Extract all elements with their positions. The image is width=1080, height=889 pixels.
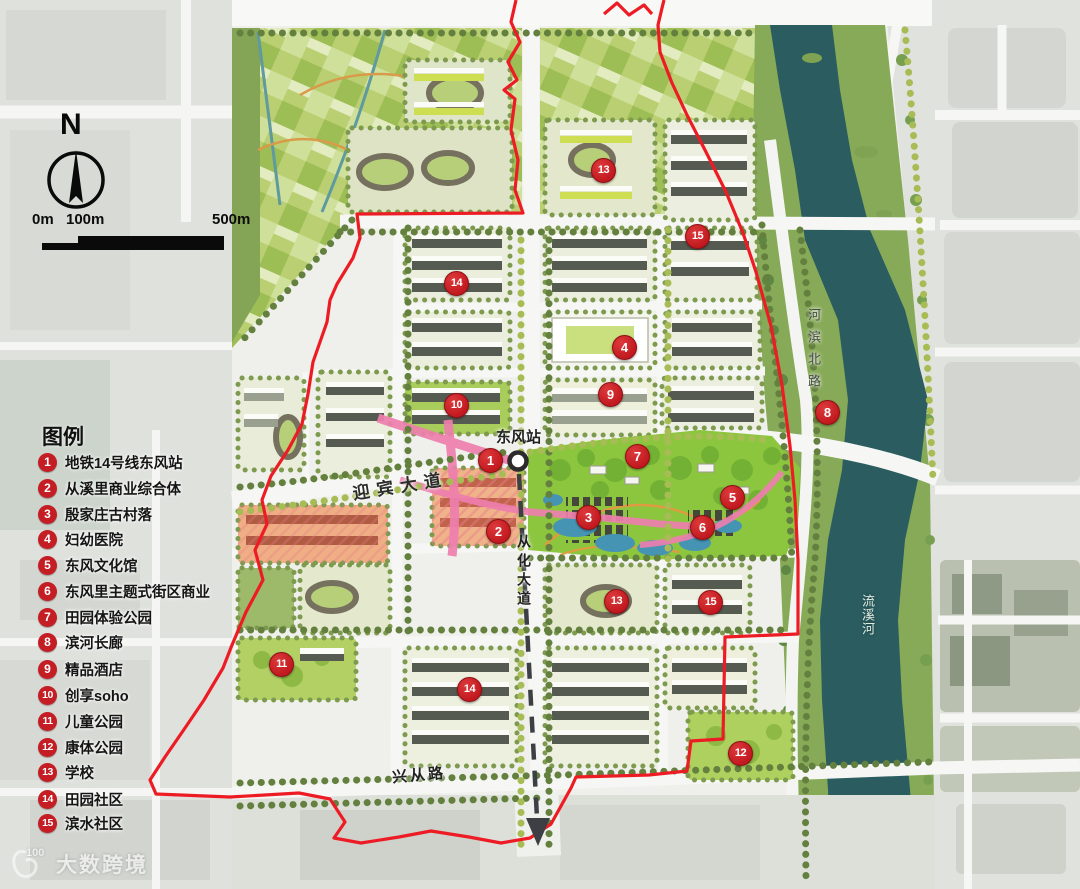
master-plan-screenshot: N 0m 100m 500m 图例 1地铁14号线东风站 2从溪里商业综合体 3… bbox=[0, 0, 1080, 889]
map-marker-8: 8 bbox=[815, 400, 840, 425]
legend-item-9: 9精品酒店 bbox=[38, 658, 123, 680]
legend-marker-10: 10 bbox=[38, 686, 57, 705]
map-marker-15-south: 15 bbox=[698, 590, 723, 615]
conghua-avenue-label: 从化大道 bbox=[514, 534, 534, 610]
scale-bar-segment-1 bbox=[42, 243, 78, 250]
legend-item-2: 2从溪里商业综合体 bbox=[38, 477, 181, 499]
legend-item-12: 12康体公园 bbox=[38, 736, 123, 758]
map-marker-10: 10 bbox=[444, 393, 469, 418]
legend-marker-11: 11 bbox=[38, 712, 57, 731]
legend-marker-1: 1 bbox=[38, 453, 57, 472]
map-marker-15-north: 15 bbox=[685, 224, 710, 249]
legend-marker-14: 14 bbox=[38, 790, 57, 809]
map-marker-7: 7 bbox=[625, 444, 650, 469]
map-marker-2: 2 bbox=[486, 519, 511, 544]
legend-marker-4: 4 bbox=[38, 530, 57, 549]
top-band bbox=[232, 0, 932, 26]
liuxi-river-label: 流溪河 bbox=[858, 594, 877, 636]
map-marker-6: 6 bbox=[690, 515, 715, 540]
map-marker-14-south: 14 bbox=[457, 677, 482, 702]
north-label: N bbox=[60, 108, 82, 142]
map-marker-5: 5 bbox=[720, 485, 745, 510]
legend-title: 图例 bbox=[42, 421, 84, 451]
legend-item-8: 8滨河长廊 bbox=[38, 631, 123, 653]
legend-item-14: 14田园社区 bbox=[38, 788, 123, 810]
legend-item-11: 11儿童公园 bbox=[38, 710, 123, 732]
scale-tick-100: 100m bbox=[66, 211, 104, 228]
legend-item-13: 13学校 bbox=[38, 761, 94, 783]
legend-item-4: 4妇幼医院 bbox=[38, 528, 123, 550]
legend-marker-6: 6 bbox=[38, 582, 57, 601]
legend-marker-8: 8 bbox=[38, 633, 57, 652]
legend-marker-2: 2 bbox=[38, 479, 57, 498]
scale-bar-segment-2 bbox=[78, 236, 224, 250]
map-marker-13-south: 13 bbox=[604, 589, 629, 614]
legend-marker-15: 15 bbox=[38, 814, 57, 833]
legend-marker-9: 9 bbox=[38, 660, 57, 679]
map-marker-4: 4 bbox=[612, 335, 637, 360]
hebin-north-road-label: 河滨北路 bbox=[804, 308, 823, 396]
legend-marker-12: 12 bbox=[38, 738, 57, 757]
legend-item-1: 1地铁14号线东风站 bbox=[38, 451, 183, 473]
legend-item-5: 5东风文化馆 bbox=[38, 554, 138, 576]
legend-marker-5: 5 bbox=[38, 556, 57, 575]
scale-tick-500: 500m bbox=[212, 211, 250, 228]
legend-item-6: 6东风里主题式街区商业 bbox=[38, 580, 210, 602]
legend-item-3: 3殷家庄古村落 bbox=[38, 503, 152, 525]
station-label: 东风站 bbox=[496, 426, 541, 447]
legend-item-7: 7田园体验公园 bbox=[38, 606, 152, 628]
legend-marker-3: 3 bbox=[38, 505, 57, 524]
legend-item-15: 15滨水社区 bbox=[38, 812, 123, 834]
map-marker-3: 3 bbox=[576, 505, 601, 530]
metro-station-icon bbox=[510, 453, 527, 470]
map-marker-11: 11 bbox=[269, 652, 294, 677]
map-marker-12: 12 bbox=[728, 741, 753, 766]
legend-marker-13: 13 bbox=[38, 763, 57, 782]
legend-item-10: 10创享soho bbox=[38, 684, 129, 706]
map-marker-1: 1 bbox=[478, 448, 503, 473]
map-marker-14-north: 14 bbox=[444, 271, 469, 296]
map-marker-13-north: 13 bbox=[591, 158, 616, 183]
legend-marker-7: 7 bbox=[38, 608, 57, 627]
scale-tick-0: 0m bbox=[32, 211, 54, 228]
map-marker-9: 9 bbox=[598, 382, 623, 407]
